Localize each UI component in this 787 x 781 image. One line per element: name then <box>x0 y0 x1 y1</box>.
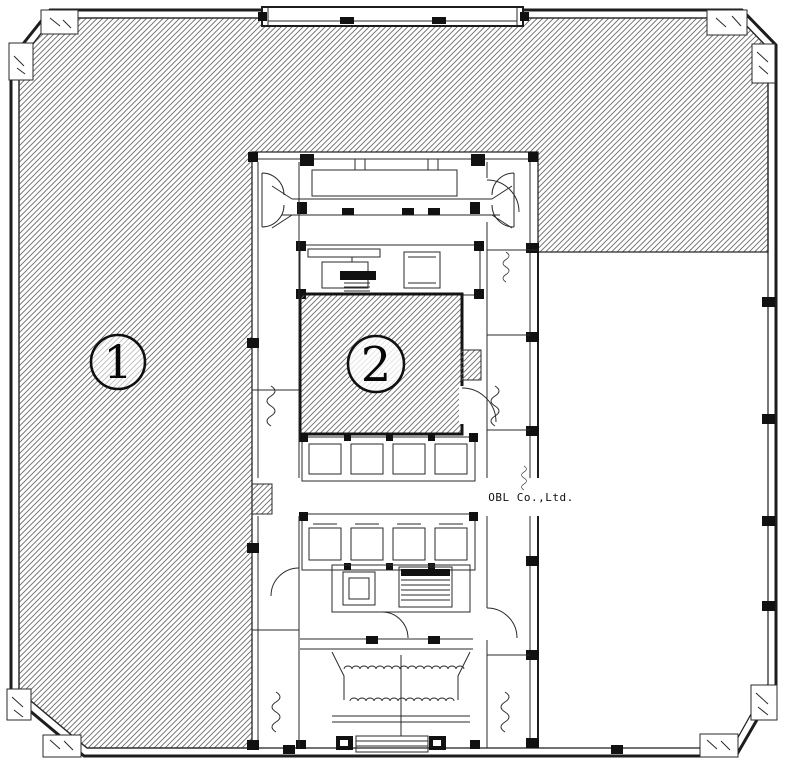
zone-2-number: 2 <box>361 337 392 393</box>
lobby-side-hatch <box>252 484 272 514</box>
corner-detail-bottom-right <box>700 685 777 757</box>
door-arc <box>271 568 299 596</box>
door-arc <box>382 612 408 638</box>
elevator-car <box>435 528 467 560</box>
elevator-car <box>435 444 467 474</box>
break-symbol <box>503 252 509 282</box>
zone-2-label: 2 <box>348 336 404 393</box>
side-wing-walls <box>252 162 538 748</box>
scallop-strip <box>350 698 454 701</box>
entrance-vestibule <box>296 652 480 752</box>
top-balcony <box>258 7 529 26</box>
elevator-bank-upper <box>299 433 478 481</box>
door-arc <box>462 388 496 422</box>
upper-corridor <box>262 159 514 228</box>
break-symbol <box>272 692 280 732</box>
lower-corridor <box>300 636 473 649</box>
elevator-car <box>309 528 341 560</box>
elevator-car <box>393 444 425 474</box>
elevator-bank-lower <box>299 512 478 570</box>
elevator-car <box>309 444 341 474</box>
door-arc <box>487 608 517 638</box>
break-symbol <box>267 386 275 426</box>
break-symbol <box>501 692 509 732</box>
floor-plan-page: 1 2 OBL Co.,Ltd. <box>0 0 787 781</box>
upper-stair-block <box>296 241 484 299</box>
company-label: OBL Co.,Ltd. <box>488 491 573 504</box>
floor-plan-drawing: 1 2 OBL Co.,Ltd. <box>0 0 787 781</box>
elevator-car <box>351 444 383 474</box>
door-arc <box>262 173 284 227</box>
break-symbol <box>522 466 527 490</box>
elevator-car <box>393 528 425 560</box>
lower-stair-block <box>332 565 470 638</box>
zone-1-label: 1 <box>91 335 145 389</box>
zone-1-number: 1 <box>103 335 132 389</box>
scallop-strip <box>344 666 464 669</box>
elevator-car <box>351 528 383 560</box>
